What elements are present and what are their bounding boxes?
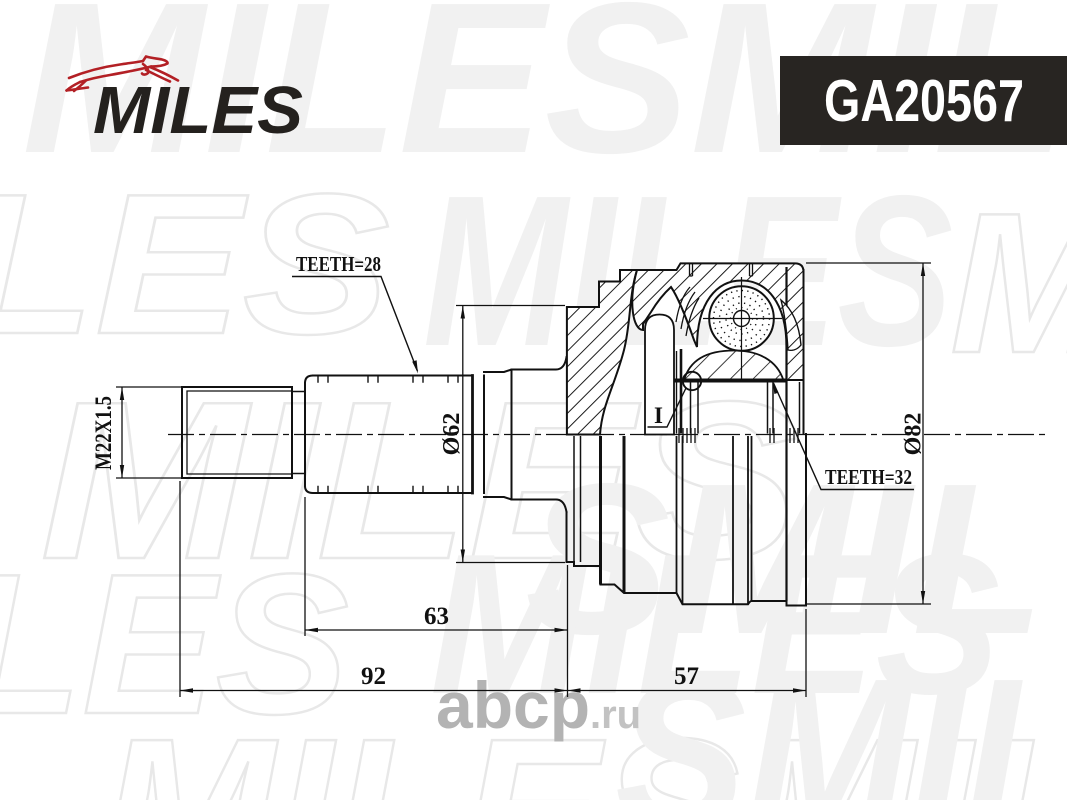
svg-text:MIL: MIL bbox=[950, 172, 1067, 395]
svg-text:MILES: MILES bbox=[93, 73, 303, 148]
svg-text:.ru: .ru bbox=[590, 693, 641, 737]
svg-text:Ø62: Ø62 bbox=[439, 413, 465, 456]
svg-text:M22X1.5: M22X1.5 bbox=[91, 396, 116, 470]
svg-text:Ø82: Ø82 bbox=[901, 413, 927, 456]
svg-text:I: I bbox=[654, 403, 663, 428]
svg-text:57: 57 bbox=[674, 663, 699, 690]
svg-text:SMIL: SMIL bbox=[615, 633, 1067, 800]
svg-text:TEETH=32: TEETH=32 bbox=[825, 465, 912, 489]
svg-text:63: 63 bbox=[424, 603, 449, 630]
svg-text:GA20567: GA20567 bbox=[824, 68, 1024, 134]
svg-text:92: 92 bbox=[361, 663, 386, 690]
svg-text:TEETH=28: TEETH=28 bbox=[296, 252, 381, 276]
